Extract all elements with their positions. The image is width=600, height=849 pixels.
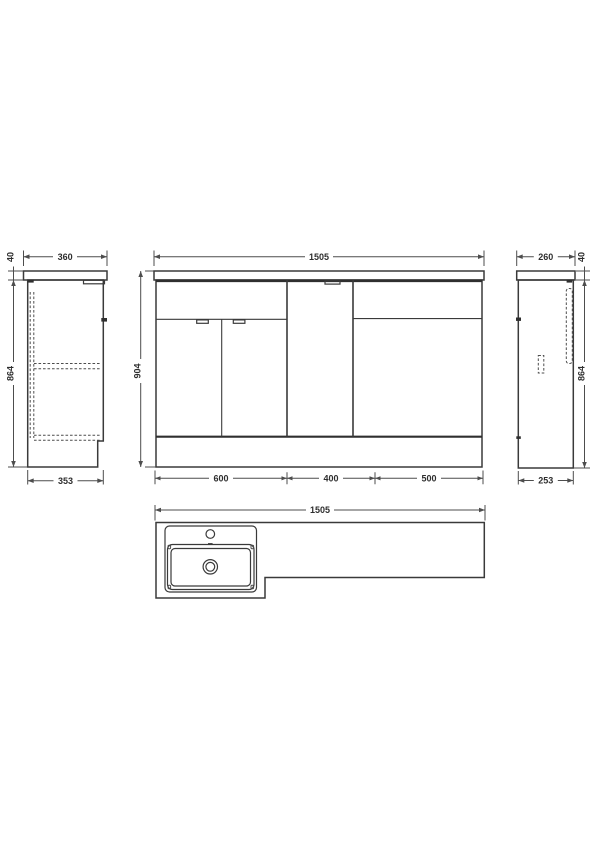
plan-view: 1505 [155,505,485,598]
front-view-dim-400-label: 400 [323,473,338,483]
front-view-dim-500-label: 500 [421,473,436,483]
left-view-dim-360: 360 [24,251,108,267]
plan-view-drain-outer [203,560,217,574]
left-view-countertop [24,271,108,280]
left-view-dim-864-label: 864 [6,366,16,381]
right-view-dim-864-label: 864 [577,366,587,381]
right-view-dim-260-label: 260 [538,252,553,262]
right-view-dim-40-864: 40 864 [574,248,590,469]
right-view-countertop [517,271,575,280]
front-view-dim-904: 904 [133,271,156,467]
left-view-handle-tick [101,318,107,322]
front-view-dim-904-label: 904 [133,363,143,378]
left-view-dim-353-label: 353 [58,476,73,486]
front-view-dim-1505-label: 1505 [309,252,329,262]
right-view-dim-253: 253 [518,471,573,486]
right-view-dim-40-label: 40 [577,252,587,262]
front-view-dim-600-400-500: 600 400 500 [155,471,483,485]
front-view-vanity-left-door-handle [197,320,209,323]
right-view-dim-260: 260 [517,251,575,267]
front-view-wc-door-handle [325,281,340,284]
left-view-corner-block [28,280,34,283]
right-side-view: 260 40 864 253 [516,248,590,486]
front-view-dim-1505: 1505 [154,251,484,267]
plan-view-basin-bowl-inner [171,549,251,587]
plan-view-basin-deck [165,526,257,592]
right-view-hidden-recess [566,289,572,364]
right-view-hidden-slot [538,356,544,374]
right-view-plinth-tick [516,436,521,439]
plan-view-dim-1505-label: 1505 [310,505,330,515]
right-view-handle-tick [516,318,521,321]
plan-view-countertop-outline [156,523,484,599]
right-view-corner-block [567,280,573,283]
left-view-cabinet-body [28,280,104,467]
front-view: 1505 904 600 400 [133,251,484,485]
front-view-dim-600-label: 600 [213,473,228,483]
technical-drawing-page: 360 40 864 353 [0,0,600,849]
left-view-dim-353: 353 [28,470,104,486]
front-view-countertop [154,271,484,280]
vanity-unit-dimension-drawing: 360 40 864 353 [0,0,600,849]
plan-view-dim-1505: 1505 [155,505,485,521]
plan-view-tap-hole [206,530,215,539]
left-view-drawer-profile [84,280,105,284]
left-view-dim-40-label: 40 [6,252,16,262]
front-view-vanity-right-door-handle [233,320,245,323]
right-view-dim-253-label: 253 [538,476,553,486]
left-side-view: 360 40 864 353 [6,248,108,486]
plan-view-basin-bowl-outer [168,545,255,590]
right-view-cabinet-body [518,280,573,468]
front-view-cabinet-body [156,280,482,467]
left-view-dim-360-label: 360 [58,252,73,262]
plan-view-drain-inner [206,562,215,571]
